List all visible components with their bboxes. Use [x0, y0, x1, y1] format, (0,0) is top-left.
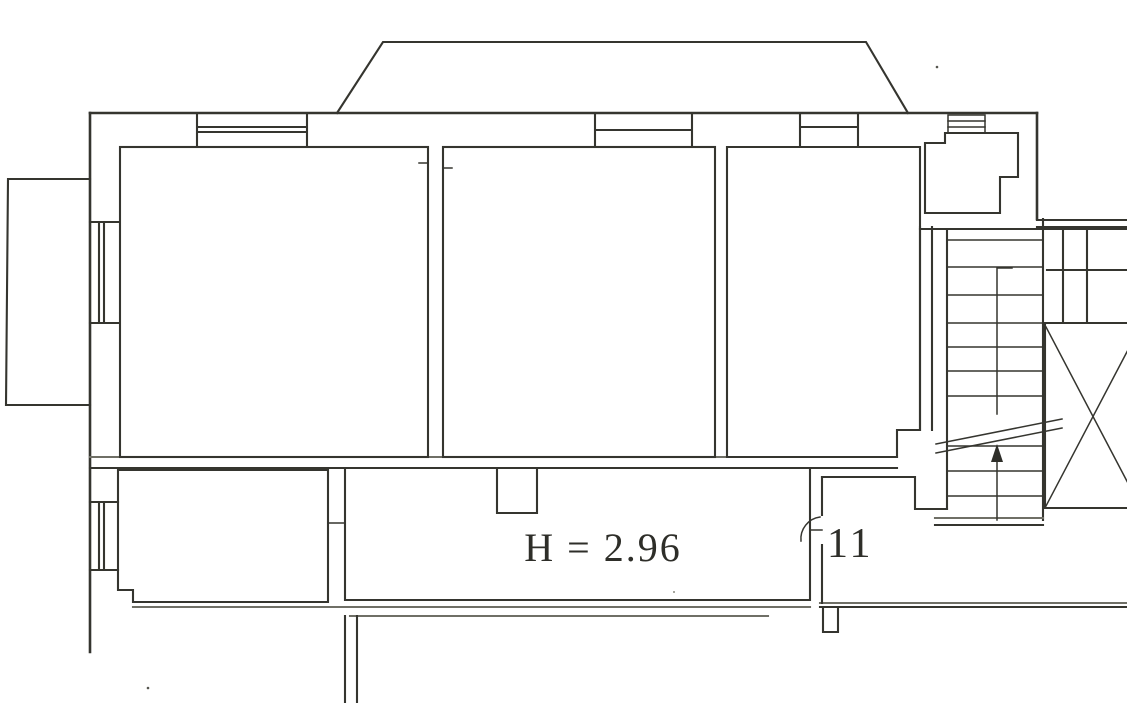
floor-plan-drawing: H = 2.96 11	[0, 0, 1127, 703]
unit-number-label: 11	[827, 521, 873, 567]
scanned-floor-plan-page: { "document": { "kind": "scanned archite…	[0, 0, 1127, 703]
paper-background	[0, 0, 1127, 703]
ceiling-height-label: H = 2.96	[524, 525, 681, 570]
